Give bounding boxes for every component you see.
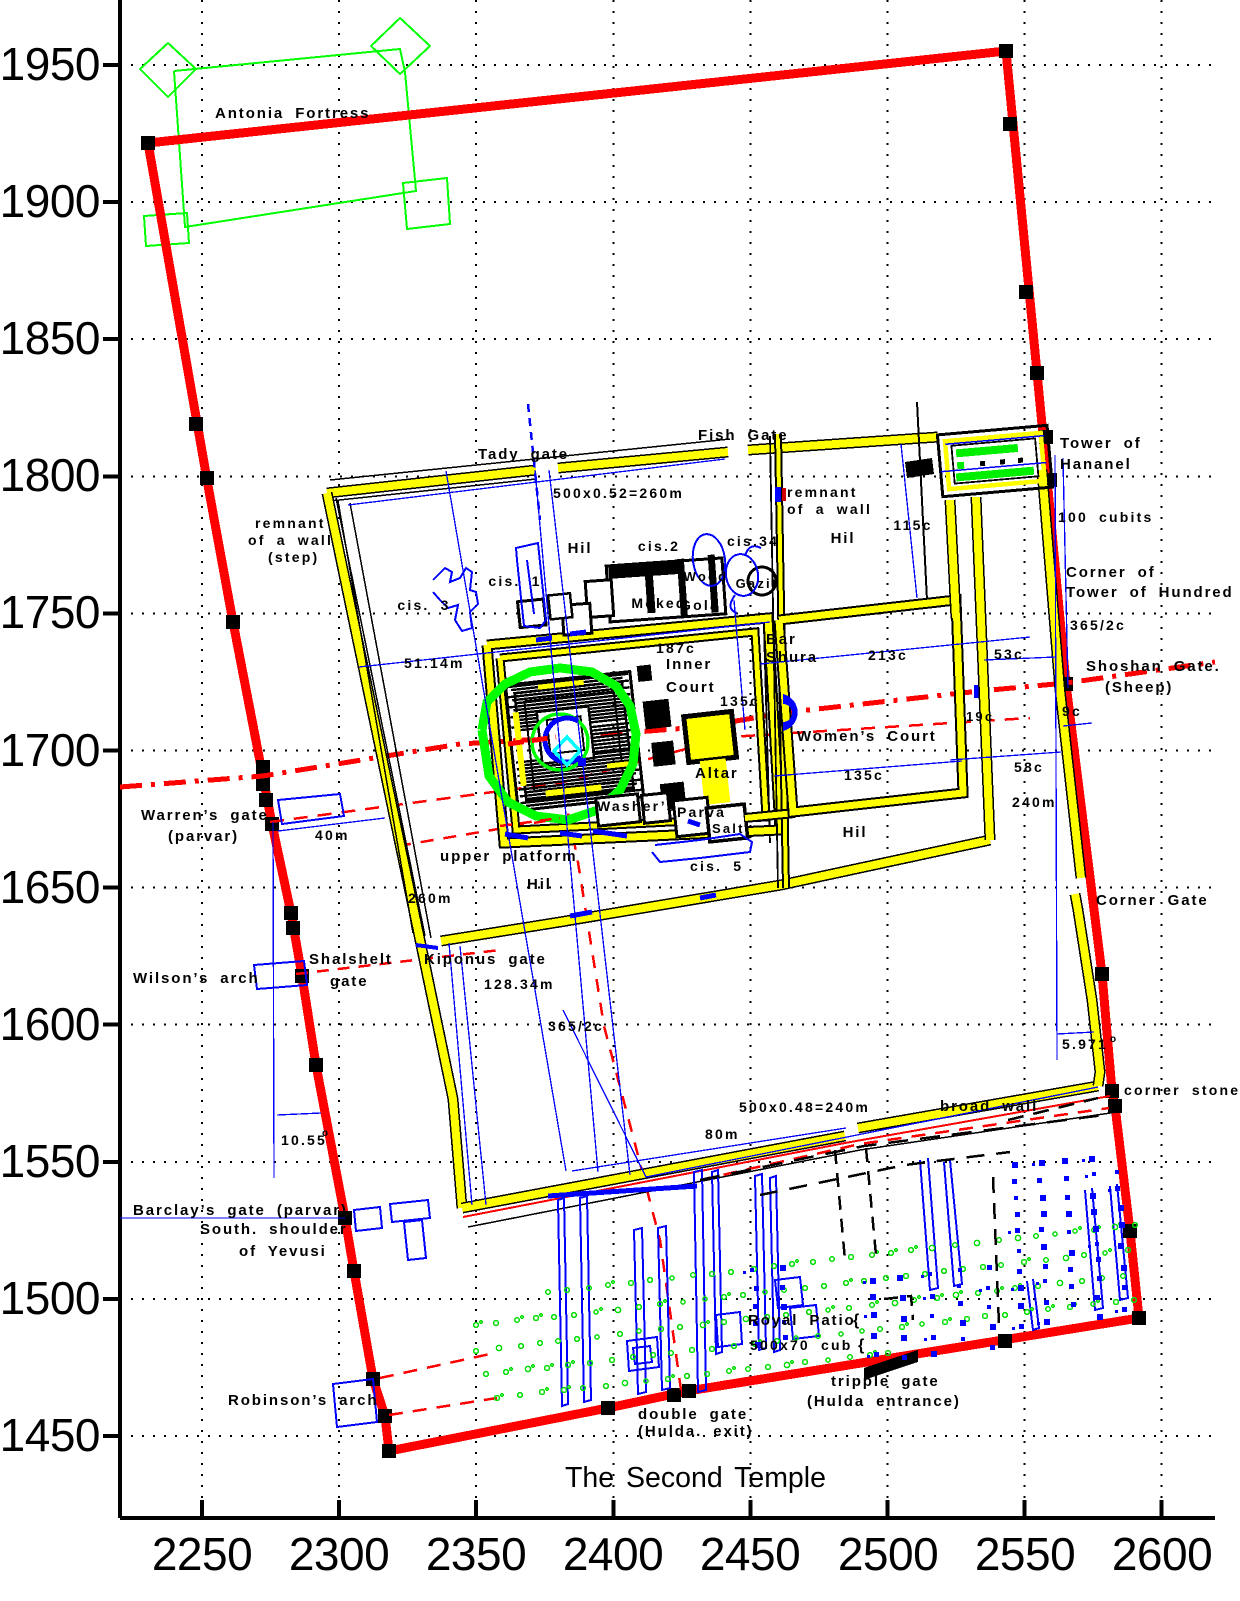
svg-text:240m: 240m — [1012, 794, 1057, 810]
svg-text:51.14m: 51.14m — [404, 655, 465, 671]
svg-text:gate: gate — [330, 973, 368, 990]
svg-text:1450: 1450 — [0, 1409, 100, 1461]
svg-text:double gate: double gate — [638, 1406, 748, 1423]
svg-text:(parvar): (parvar) — [168, 828, 239, 845]
svg-text:Parva: Parva — [677, 804, 726, 820]
svg-text:Women’s Court: Women’s Court — [797, 728, 937, 745]
svg-text:broad wall: broad wall — [940, 1098, 1038, 1115]
svg-text:cis. 1: cis. 1 — [488, 573, 541, 589]
svg-text:1750: 1750 — [0, 586, 100, 638]
svg-text:1600: 1600 — [0, 998, 100, 1050]
svg-text:Tower of: Tower of — [1060, 435, 1142, 452]
svg-text:Salt: Salt — [712, 821, 745, 836]
svg-text:500x0.52=260m: 500x0.52=260m — [553, 485, 684, 501]
svg-text:10.55: 10.55 — [281, 1132, 327, 1148]
svg-text:2250: 2250 — [152, 1528, 252, 1580]
svg-text:500x70 cub: 500x70 cub — [750, 1337, 853, 1353]
svg-text:Shalshelt: Shalshelt — [309, 951, 393, 968]
svg-text:Moked: Moked — [631, 595, 686, 611]
svg-text:135c: 135c — [720, 693, 760, 709]
svg-text:Royal Patio: Royal Patio — [748, 1312, 856, 1329]
svg-text:Warren’s gate: Warren’s gate — [141, 807, 269, 824]
svg-text:115c: 115c — [893, 517, 932, 533]
svg-text:Tady gate: Tady gate — [478, 446, 569, 463]
svg-text:cis.2: cis.2 — [638, 538, 680, 554]
svg-text:1700: 1700 — [0, 724, 100, 776]
svg-text:Altar: Altar — [695, 765, 739, 782]
svg-text:Shoshan Gate.: Shoshan Gate. — [1086, 658, 1221, 675]
svg-text:South. shoulder: South. shoulder — [200, 1221, 348, 1238]
svg-text:128.34m: 128.34m — [484, 976, 555, 992]
svg-text:2450: 2450 — [700, 1528, 800, 1580]
svg-text:1500: 1500 — [0, 1272, 100, 1324]
svg-text:Robinson’s arch: Robinson’s arch — [228, 1392, 378, 1409]
svg-text:tripple gate: tripple gate — [831, 1373, 940, 1390]
svg-text:2500: 2500 — [838, 1528, 938, 1580]
svg-text:58c: 58c — [1014, 759, 1044, 775]
svg-text:of a wall: of a wall — [787, 501, 872, 517]
svg-text:365/2c: 365/2c — [1070, 617, 1126, 633]
svg-text:Shura: Shura — [766, 649, 818, 666]
svg-text:The Second Temple: The Second Temple — [565, 1462, 826, 1494]
svg-text:Inner: Inner — [666, 656, 712, 673]
svg-text:80m: 80m — [705, 1126, 740, 1142]
svg-text:1900: 1900 — [0, 175, 100, 227]
svg-text:Barclay’s gate (parvar): Barclay’s gate (parvar) — [133, 1202, 348, 1219]
svg-text:cis. 5: cis. 5 — [690, 858, 743, 874]
svg-text:Hil: Hil — [831, 530, 856, 547]
svg-text:of a wall: of a wall — [248, 532, 333, 548]
svg-text:upper platform: upper platform — [440, 848, 577, 865]
svg-text:Wood: Wood — [684, 569, 729, 584]
svg-text:2350: 2350 — [426, 1528, 526, 1580]
svg-text:100 cubits: 100 cubits — [1058, 509, 1153, 525]
svg-text:213c: 213c — [868, 647, 908, 663]
svg-text:Kiponus gate: Kiponus gate — [424, 951, 547, 968]
svg-text:2550: 2550 — [975, 1528, 1075, 1580]
svg-text:1850: 1850 — [0, 312, 100, 364]
svg-text:Fish Gate: Fish Gate — [698, 427, 788, 444]
svg-text:(Hulda. exit): (Hulda. exit) — [638, 1423, 754, 1440]
svg-text:Court: Court — [666, 679, 716, 696]
svg-text:Corner of: Corner of — [1066, 564, 1156, 581]
svg-text:{: { — [858, 1337, 866, 1354]
svg-text:135c: 135c — [844, 767, 884, 783]
svg-text:o: o — [322, 1128, 328, 1139]
svg-text:Gola: Gola — [680, 597, 720, 613]
svg-text:Washer’s: Washer’s — [597, 798, 676, 814]
svg-text:Hil: Hil — [843, 824, 868, 841]
svg-text:500x0.48=240m: 500x0.48=240m — [739, 1099, 870, 1115]
svg-text:9c: 9c — [1062, 703, 1082, 719]
svg-text:53c: 53c — [994, 646, 1024, 662]
svg-text:40m: 40m — [315, 827, 350, 843]
svg-text:Wilson’s arch: Wilson’s arch — [133, 970, 260, 987]
svg-text:Corner Gate: Corner Gate — [1096, 892, 1209, 909]
svg-text:remnant: remnant — [255, 515, 326, 531]
svg-text:{: { — [853, 1312, 861, 1329]
svg-text:remnant: remnant — [787, 484, 858, 500]
svg-text:cis.34: cis.34 — [727, 533, 779, 549]
svg-text:Gazit: Gazit — [736, 576, 779, 591]
svg-text:corner stone: corner stone — [1124, 1082, 1240, 1098]
svg-text:Hil: Hil — [568, 540, 593, 557]
svg-text:1650: 1650 — [0, 861, 100, 913]
svg-text:2300: 2300 — [289, 1528, 389, 1580]
svg-text:1950: 1950 — [0, 38, 100, 90]
svg-text:Hananel: Hananel — [1060, 456, 1132, 473]
svg-text:1550: 1550 — [0, 1135, 100, 1187]
svg-text:o: o — [1110, 1034, 1116, 1045]
svg-text:2400: 2400 — [563, 1528, 663, 1580]
svg-text:1800: 1800 — [0, 449, 100, 501]
svg-text:2600: 2600 — [1112, 1528, 1212, 1580]
svg-text:of Yevusi: of Yevusi — [239, 1243, 327, 1260]
svg-text:19c: 19c — [966, 709, 994, 724]
svg-text:Tower of Hundred: Tower of Hundred — [1066, 584, 1234, 601]
svg-text:365/2c: 365/2c — [548, 1018, 604, 1034]
svg-text:Antonia Fortress: Antonia Fortress — [215, 105, 370, 122]
svg-text:cis. 3: cis. 3 — [397, 597, 450, 613]
svg-text:(Hulda entrance): (Hulda entrance) — [807, 1393, 961, 1410]
svg-text:(step): (step) — [268, 549, 319, 565]
svg-text:5.971: 5.971 — [1062, 1036, 1108, 1052]
svg-text:187c: 187c — [656, 640, 696, 656]
svg-text:(Sheep): (Sheep) — [1105, 679, 1173, 696]
svg-text:Bar: Bar — [766, 631, 797, 648]
svg-text:260m: 260m — [408, 890, 453, 906]
svg-text:Hil: Hil — [527, 876, 552, 893]
